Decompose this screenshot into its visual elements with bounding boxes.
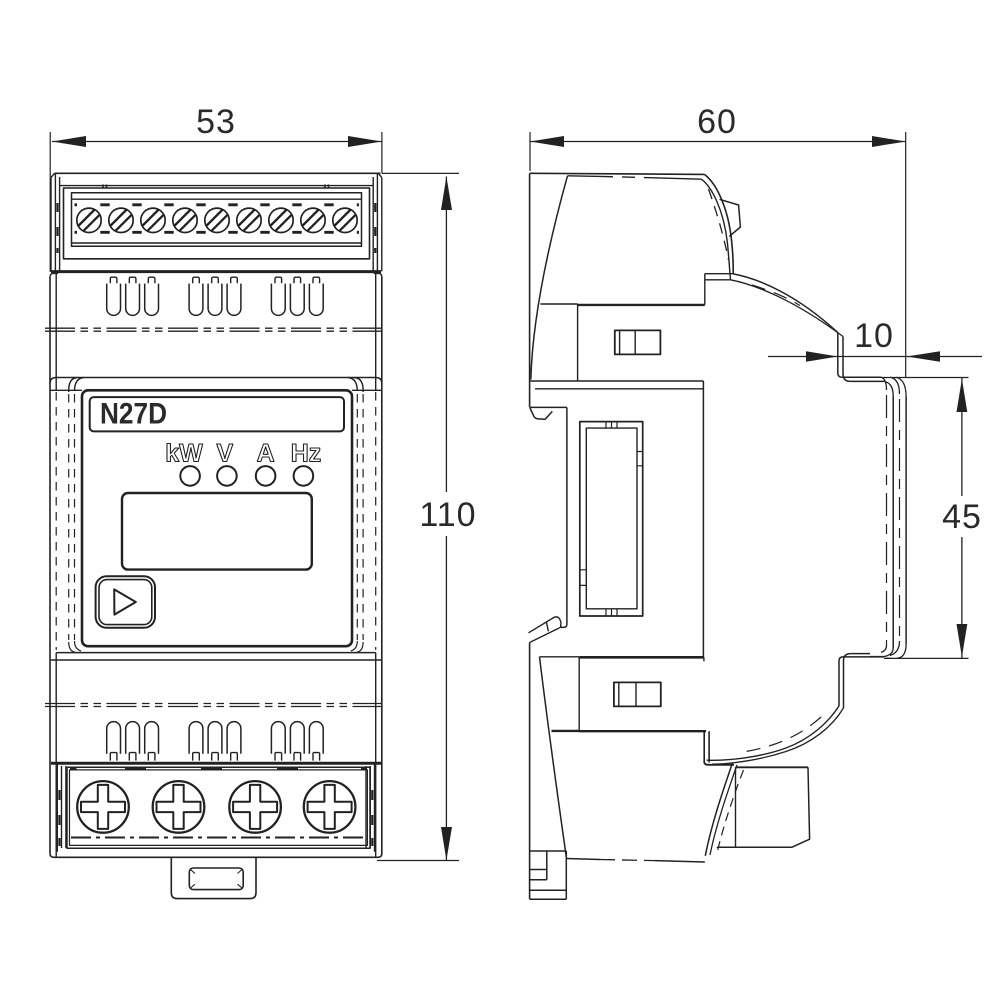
svg-text:10: 10 (854, 317, 894, 355)
svg-text:N27D: N27D (100, 398, 167, 431)
svg-text:45: 45 (942, 498, 982, 536)
svg-text:60: 60 (697, 103, 737, 141)
svg-text:kW: kW (165, 440, 203, 468)
svg-text:V: V (216, 440, 233, 468)
svg-text:A: A (257, 440, 275, 468)
svg-text:110: 110 (419, 496, 476, 534)
svg-text:53: 53 (196, 103, 236, 141)
svg-text:Hz: Hz (291, 440, 322, 468)
